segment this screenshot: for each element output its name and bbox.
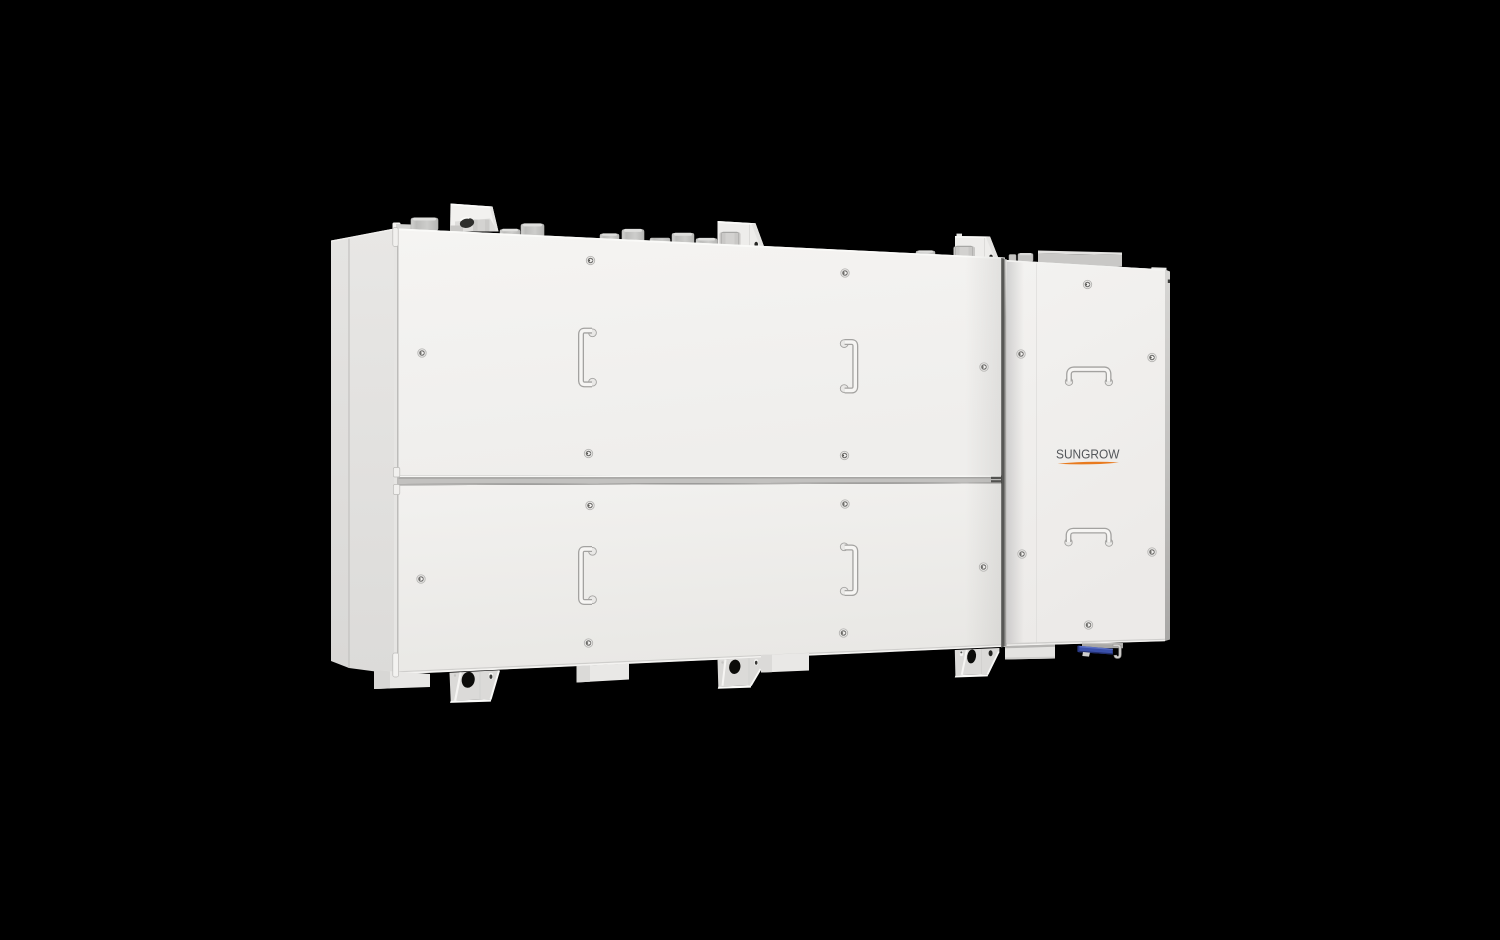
- svg-text:SUNGROW: SUNGROW: [1056, 447, 1120, 462]
